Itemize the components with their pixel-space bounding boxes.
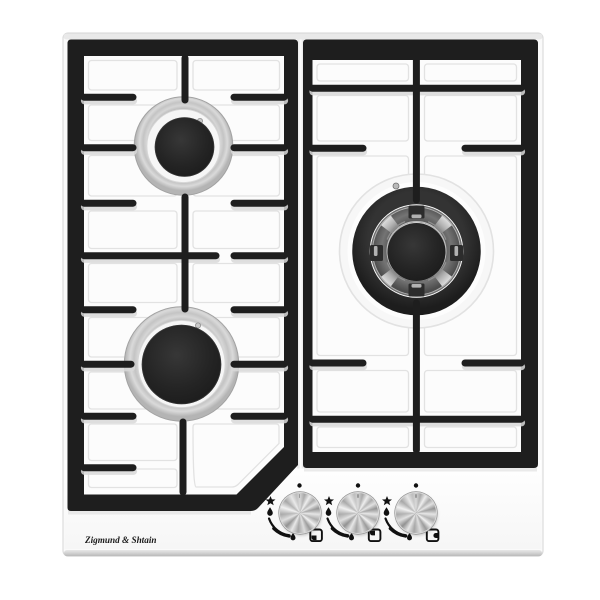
svg-text:Zigmund & Shtain: Zigmund & Shtain bbox=[84, 535, 157, 545]
